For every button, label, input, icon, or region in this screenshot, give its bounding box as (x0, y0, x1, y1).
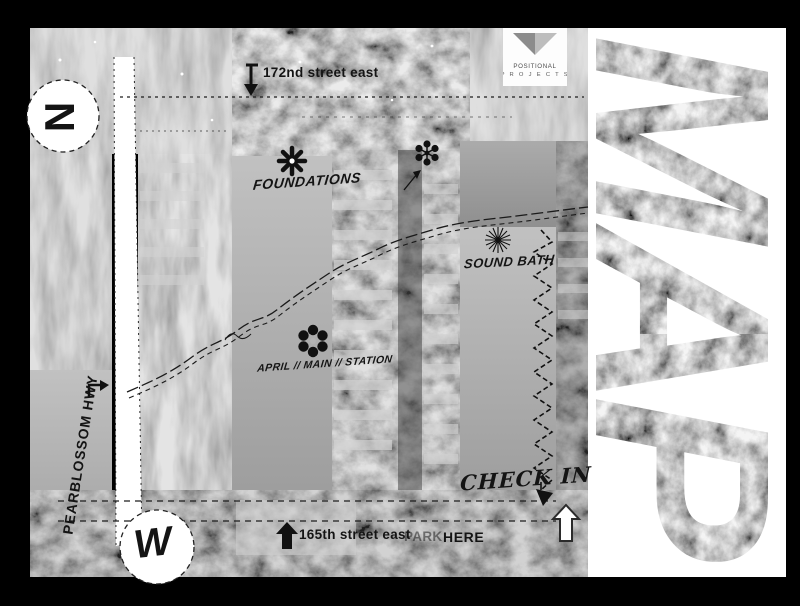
foundations-clearing (232, 156, 332, 490)
photo-strips (30, 28, 588, 577)
park-label: PARK (404, 529, 442, 544)
compass-west-label: W (131, 519, 174, 568)
compass-north-label: N (36, 102, 84, 132)
positional-projects-logo: POSITIONAL P R O J E C T S (503, 28, 567, 86)
street-label-165th: 165th street east (299, 527, 411, 542)
logo-line2: P R O J E C T S (503, 72, 567, 78)
map-poster: MAP (0, 0, 800, 606)
map-collage: MAP (0, 0, 800, 606)
here-label: HERE (443, 529, 484, 545)
logo-line1: POSITIONAL (513, 63, 556, 70)
foundations-asterisk-icon (279, 148, 305, 174)
street-label-172nd: 172nd street east (263, 65, 378, 80)
tree-trunk (398, 150, 422, 490)
